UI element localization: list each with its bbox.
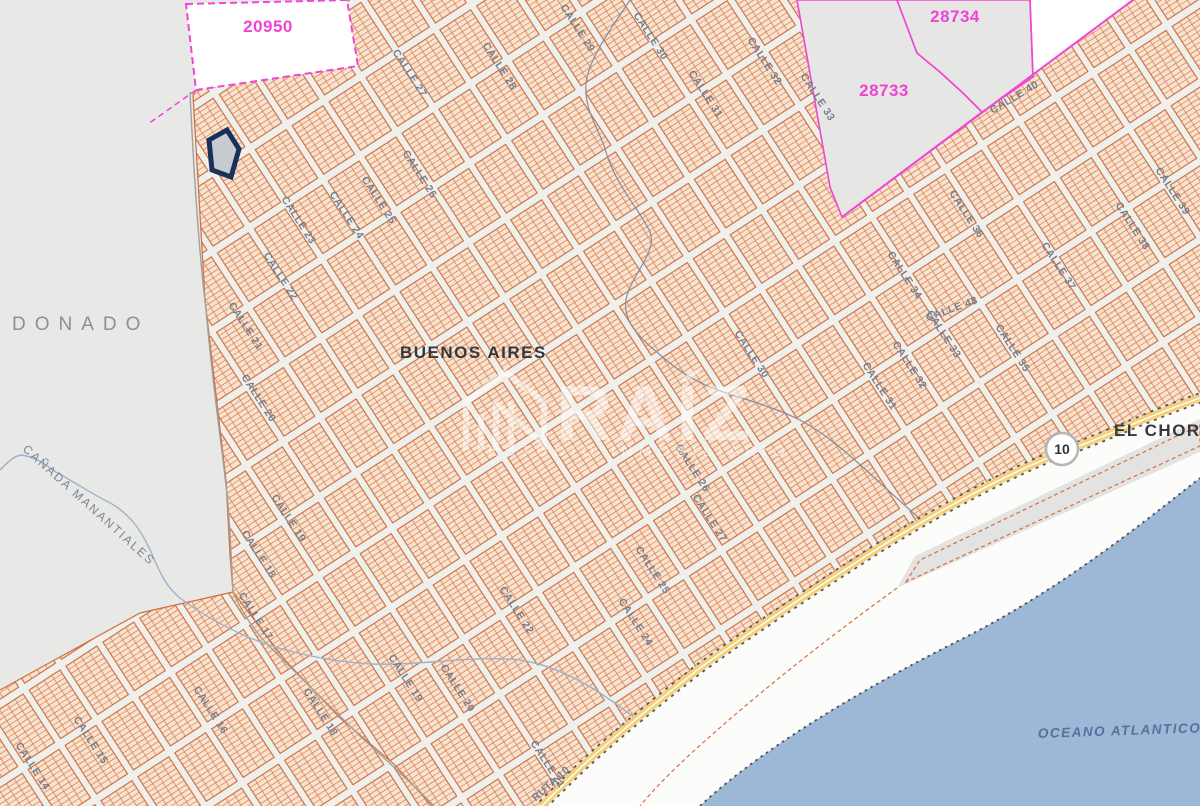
place-label-el-chorro: EL CHOR: [1114, 421, 1200, 440]
parcel-id-28733: 28733: [859, 81, 909, 100]
map-canvas[interactable]: CALLE 23CALLE 24CALLE 25CALLE 26CALLE 27…: [0, 0, 1200, 806]
watermark-tagline: ESTUDIO INMOBILIARIO: [488, 443, 791, 460]
route-10-shield: 10: [1046, 433, 1078, 465]
parcel-id-20950: 20950: [243, 17, 293, 36]
map-viewport[interactable]: CALLE 23CALLE 24CALLE 25CALLE 26CALLE 27…: [0, 0, 1200, 806]
place-label-maldonado: DONADO: [12, 314, 149, 335]
place-label-buenos-aires: BUENOS AIRES: [400, 343, 547, 362]
route-10-shield-number: 10: [1054, 441, 1070, 457]
parcel-id-28734: 28734: [930, 7, 980, 26]
